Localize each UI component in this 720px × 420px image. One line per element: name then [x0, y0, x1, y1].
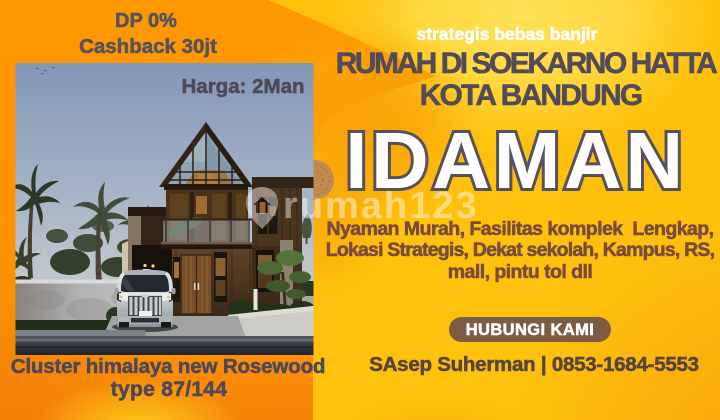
svg-text:IDAMAN: IDAMAN [345, 116, 687, 205]
